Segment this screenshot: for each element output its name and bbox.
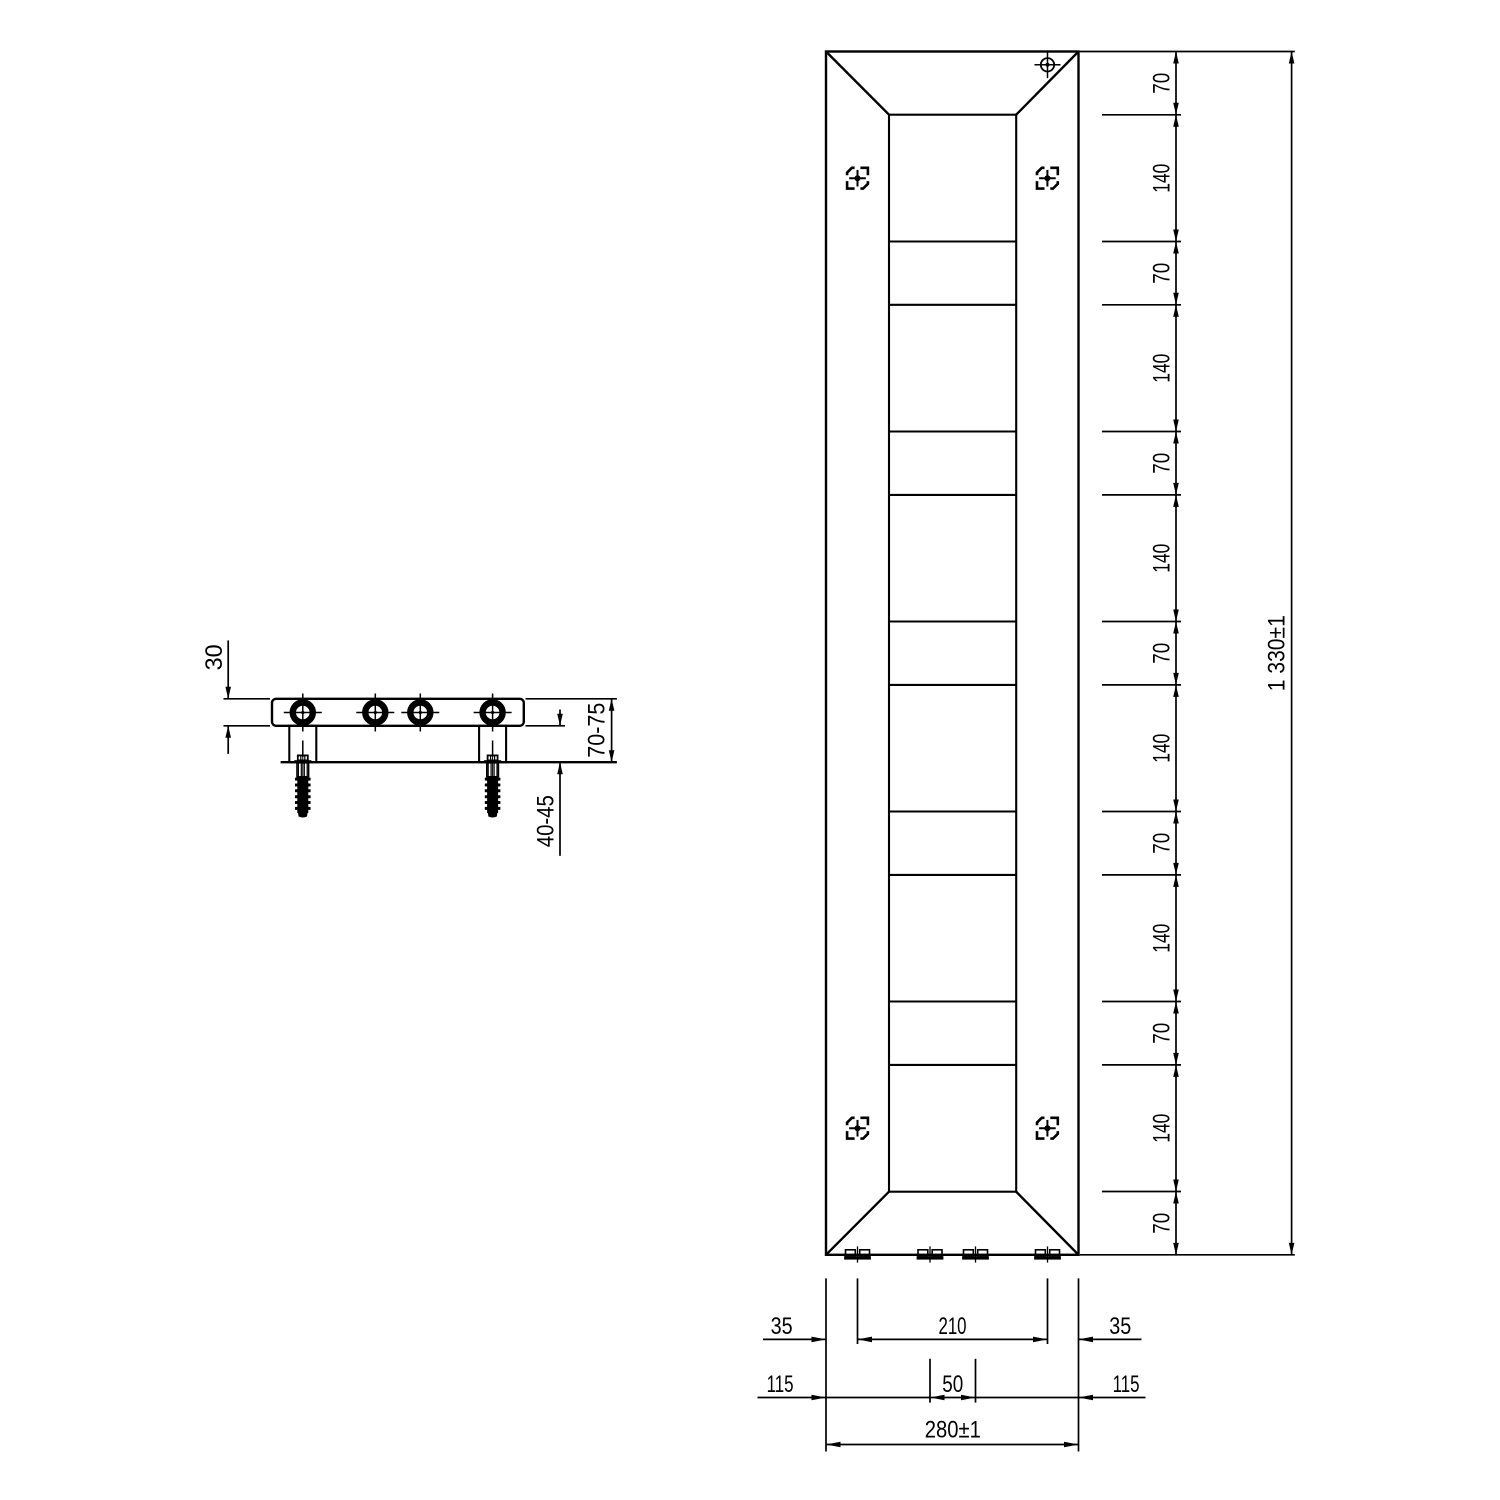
svg-text:140: 140 xyxy=(1149,734,1176,763)
svg-text:70: 70 xyxy=(1149,643,1176,664)
svg-text:140: 140 xyxy=(1149,354,1176,383)
svg-text:70: 70 xyxy=(1149,453,1176,474)
svg-text:140: 140 xyxy=(1149,164,1176,193)
svg-text:1 330±1: 1 330±1 xyxy=(1264,615,1291,691)
svg-text:140: 140 xyxy=(1149,544,1176,573)
svg-text:70: 70 xyxy=(1149,833,1176,854)
svg-text:140: 140 xyxy=(1149,924,1176,953)
svg-text:280±1: 280±1 xyxy=(925,1416,981,1443)
svg-text:70: 70 xyxy=(1149,1023,1176,1044)
svg-text:40-45: 40-45 xyxy=(533,795,560,847)
svg-text:30: 30 xyxy=(201,644,228,670)
svg-text:115: 115 xyxy=(767,1371,794,1398)
svg-text:70: 70 xyxy=(1149,73,1176,94)
svg-text:70-75: 70-75 xyxy=(584,703,611,758)
svg-text:140: 140 xyxy=(1149,1114,1176,1143)
svg-text:70: 70 xyxy=(1149,1213,1176,1234)
svg-text:35: 35 xyxy=(1109,1313,1131,1340)
svg-text:50: 50 xyxy=(942,1371,963,1398)
svg-text:70: 70 xyxy=(1149,263,1176,284)
svg-text:35: 35 xyxy=(771,1313,793,1340)
svg-text:115: 115 xyxy=(1113,1371,1140,1398)
svg-text:210: 210 xyxy=(939,1313,967,1340)
